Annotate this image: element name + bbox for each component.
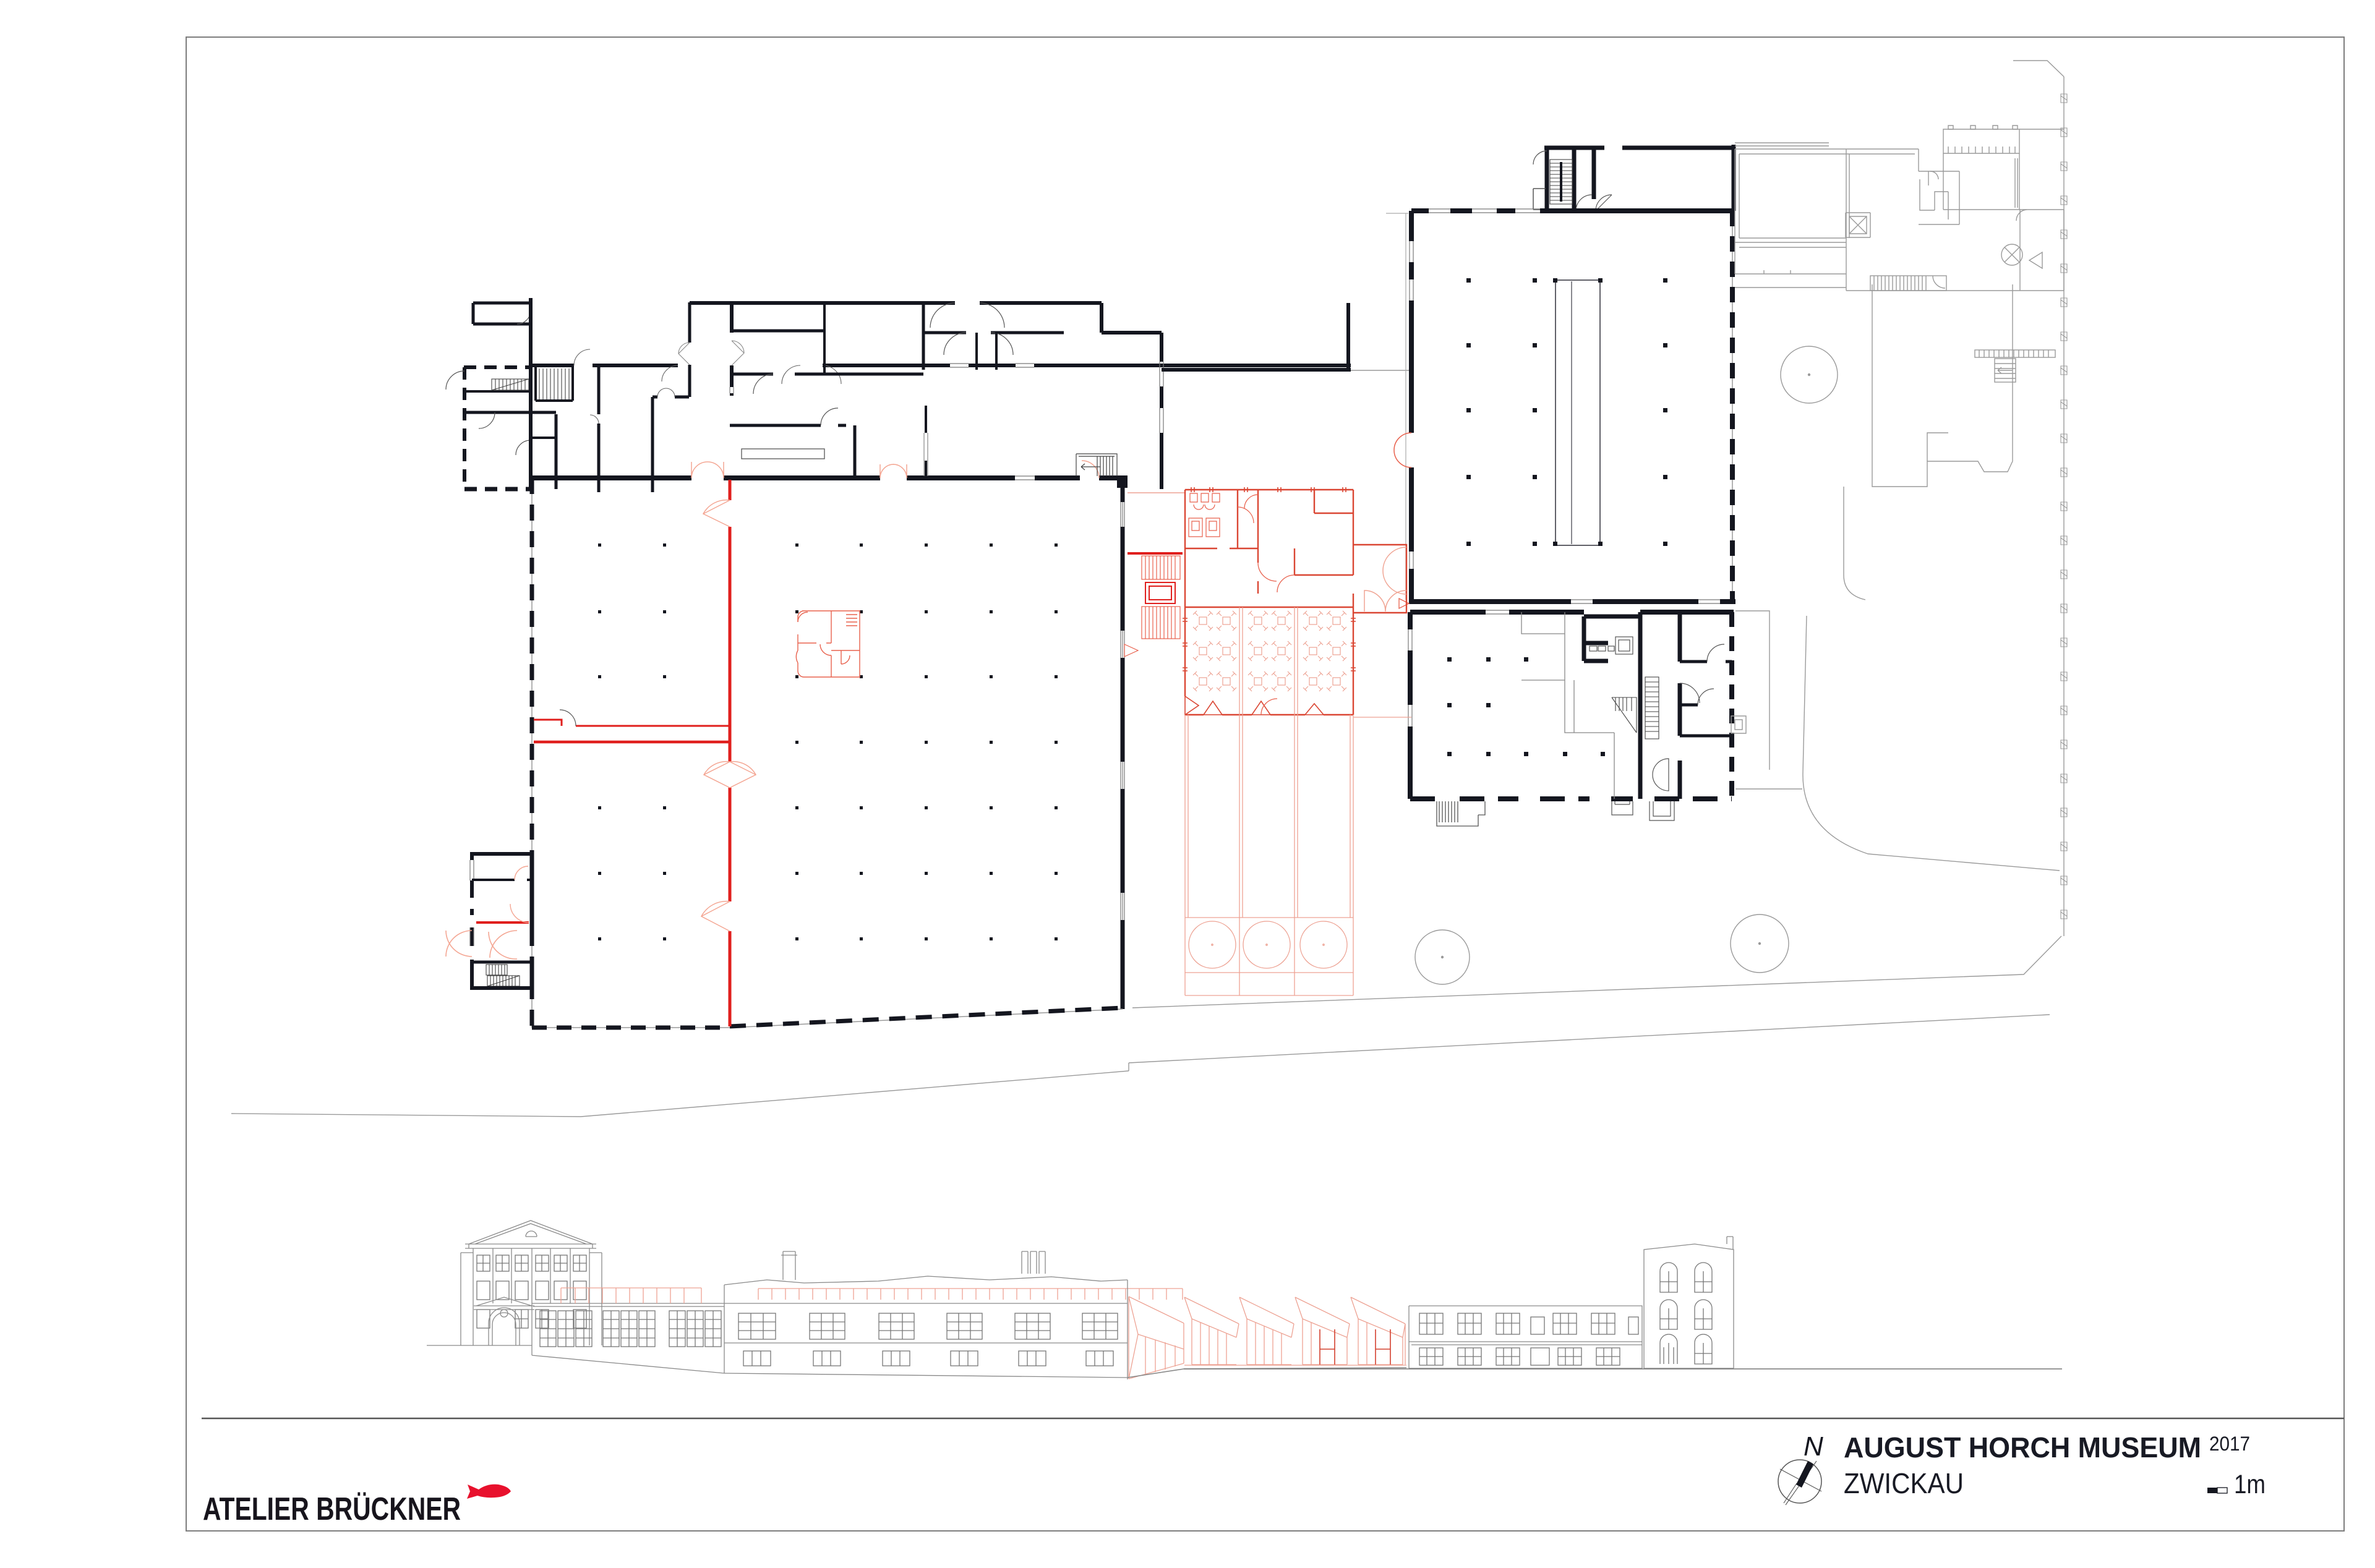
svg-text:ATELIER BRÜCKNER: ATELIER BRÜCKNER: [203, 1491, 461, 1527]
svg-text:N: N: [1804, 1431, 1823, 1462]
svg-text:1m: 1m: [2234, 1470, 2266, 1499]
svg-text:ZWICKAU: ZWICKAU: [1844, 1467, 1964, 1499]
svg-text:AUGUST HORCH MUSEUM: AUGUST HORCH MUSEUM: [1844, 1431, 2201, 1464]
svg-text:2017: 2017: [2209, 1433, 2250, 1455]
